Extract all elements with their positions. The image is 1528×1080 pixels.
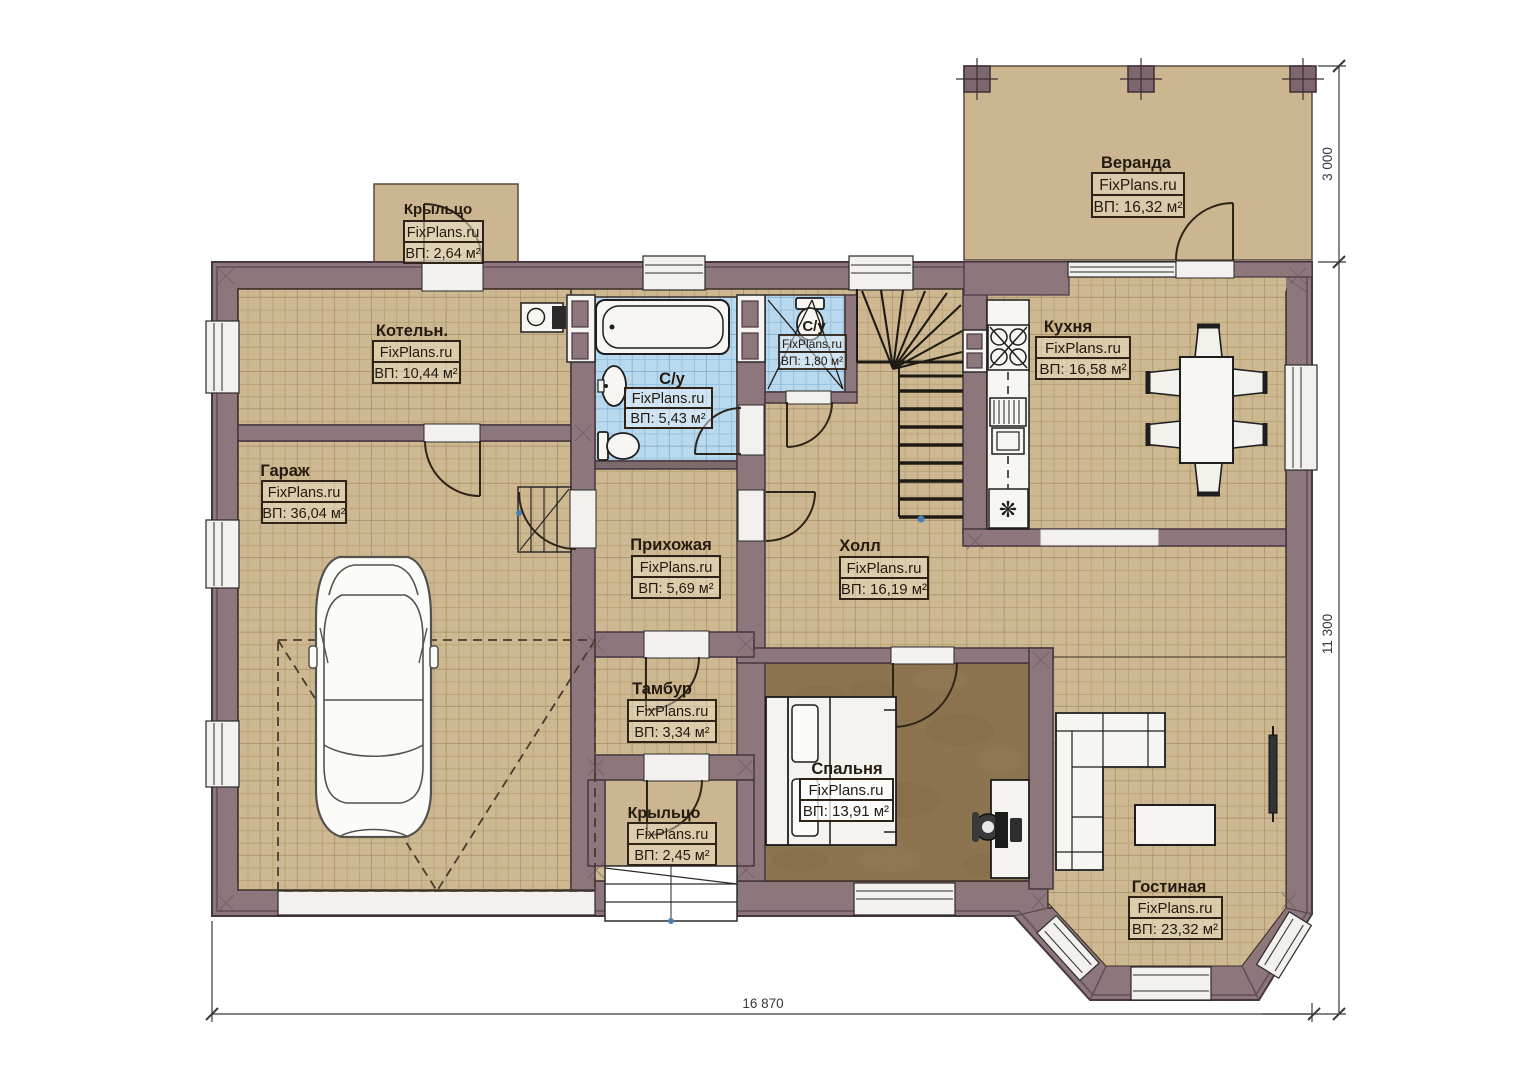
svg-text:Крыльцо: Крыльцо — [404, 201, 472, 218]
svg-text:FixPlans.ru: FixPlans.ru — [782, 337, 842, 351]
svg-text:Спальня: Спальня — [811, 760, 882, 778]
svg-text:FixPlans.ru: FixPlans.ru — [268, 485, 341, 501]
svg-text:Тамбур: Тамбур — [632, 680, 692, 698]
svg-text:16 870: 16 870 — [742, 996, 783, 1011]
svg-text:FixPlans.ru: FixPlans.ru — [380, 345, 453, 361]
svg-text:FixPlans.ru: FixPlans.ru — [640, 560, 713, 576]
svg-text:ВП: 1,80 м²: ВП: 1,80 м² — [781, 354, 843, 368]
svg-text:FixPlans.ru: FixPlans.ru — [846, 560, 921, 577]
svg-text:Веранда: Веранда — [1101, 154, 1172, 172]
svg-text:Гостиная: Гостиная — [1132, 878, 1207, 896]
svg-text:ВП: 36,04 м²: ВП: 36,04 м² — [262, 506, 345, 522]
svg-text:ВП: 16,19 м²: ВП: 16,19 м² — [841, 581, 927, 598]
svg-text:ВП: 13,91 м²: ВП: 13,91 м² — [803, 803, 889, 820]
svg-text:FixPlans.ru: FixPlans.ru — [636, 704, 709, 720]
svg-text:ВП: 5,43 м²: ВП: 5,43 м² — [630, 411, 705, 427]
svg-text:С/у: С/у — [802, 318, 826, 335]
svg-text:3 000: 3 000 — [1320, 147, 1335, 181]
svg-text:❋: ❋ — [999, 497, 1017, 522]
svg-text:FixPlans.ru: FixPlans.ru — [1045, 340, 1121, 357]
svg-text:ВП: 23,32 м²: ВП: 23,32 м² — [1132, 921, 1218, 938]
svg-text:Котельн.: Котельн. — [376, 322, 448, 340]
svg-text:Гараж: Гараж — [260, 462, 310, 480]
svg-text:FixPlans.ru: FixPlans.ru — [632, 391, 705, 407]
svg-text:ВП: 2,64 м²: ВП: 2,64 м² — [405, 246, 480, 262]
svg-text:Кухня: Кухня — [1044, 318, 1092, 336]
svg-text:11 300: 11 300 — [1320, 614, 1335, 654]
svg-text:FixPlans.ru: FixPlans.ru — [808, 782, 883, 799]
svg-text:ВП: 5,69 м²: ВП: 5,69 м² — [638, 581, 713, 597]
svg-text:ВП: 10,44 м²: ВП: 10,44 м² — [374, 366, 457, 382]
svg-text:Прихожая: Прихожая — [630, 536, 711, 554]
svg-text:FixPlans.ru: FixPlans.ru — [636, 827, 709, 843]
svg-text:Холл: Холл — [839, 537, 880, 555]
svg-text:С/у: С/у — [659, 370, 686, 388]
svg-text:ВП: 16,58 м²: ВП: 16,58 м² — [1039, 361, 1126, 378]
svg-text:Крыльцо: Крыльцо — [628, 805, 701, 822]
svg-text:ВП: 3,34 м²: ВП: 3,34 м² — [634, 725, 709, 741]
svg-text:FixPlans.ru: FixPlans.ru — [1099, 177, 1177, 194]
svg-text:ВП: 2,45 м²: ВП: 2,45 м² — [634, 848, 709, 864]
svg-text:FixPlans.ru: FixPlans.ru — [407, 225, 480, 241]
svg-text:ВП: 16,32 м²: ВП: 16,32 м² — [1093, 199, 1182, 216]
svg-text:FixPlans.ru: FixPlans.ru — [1137, 900, 1212, 917]
